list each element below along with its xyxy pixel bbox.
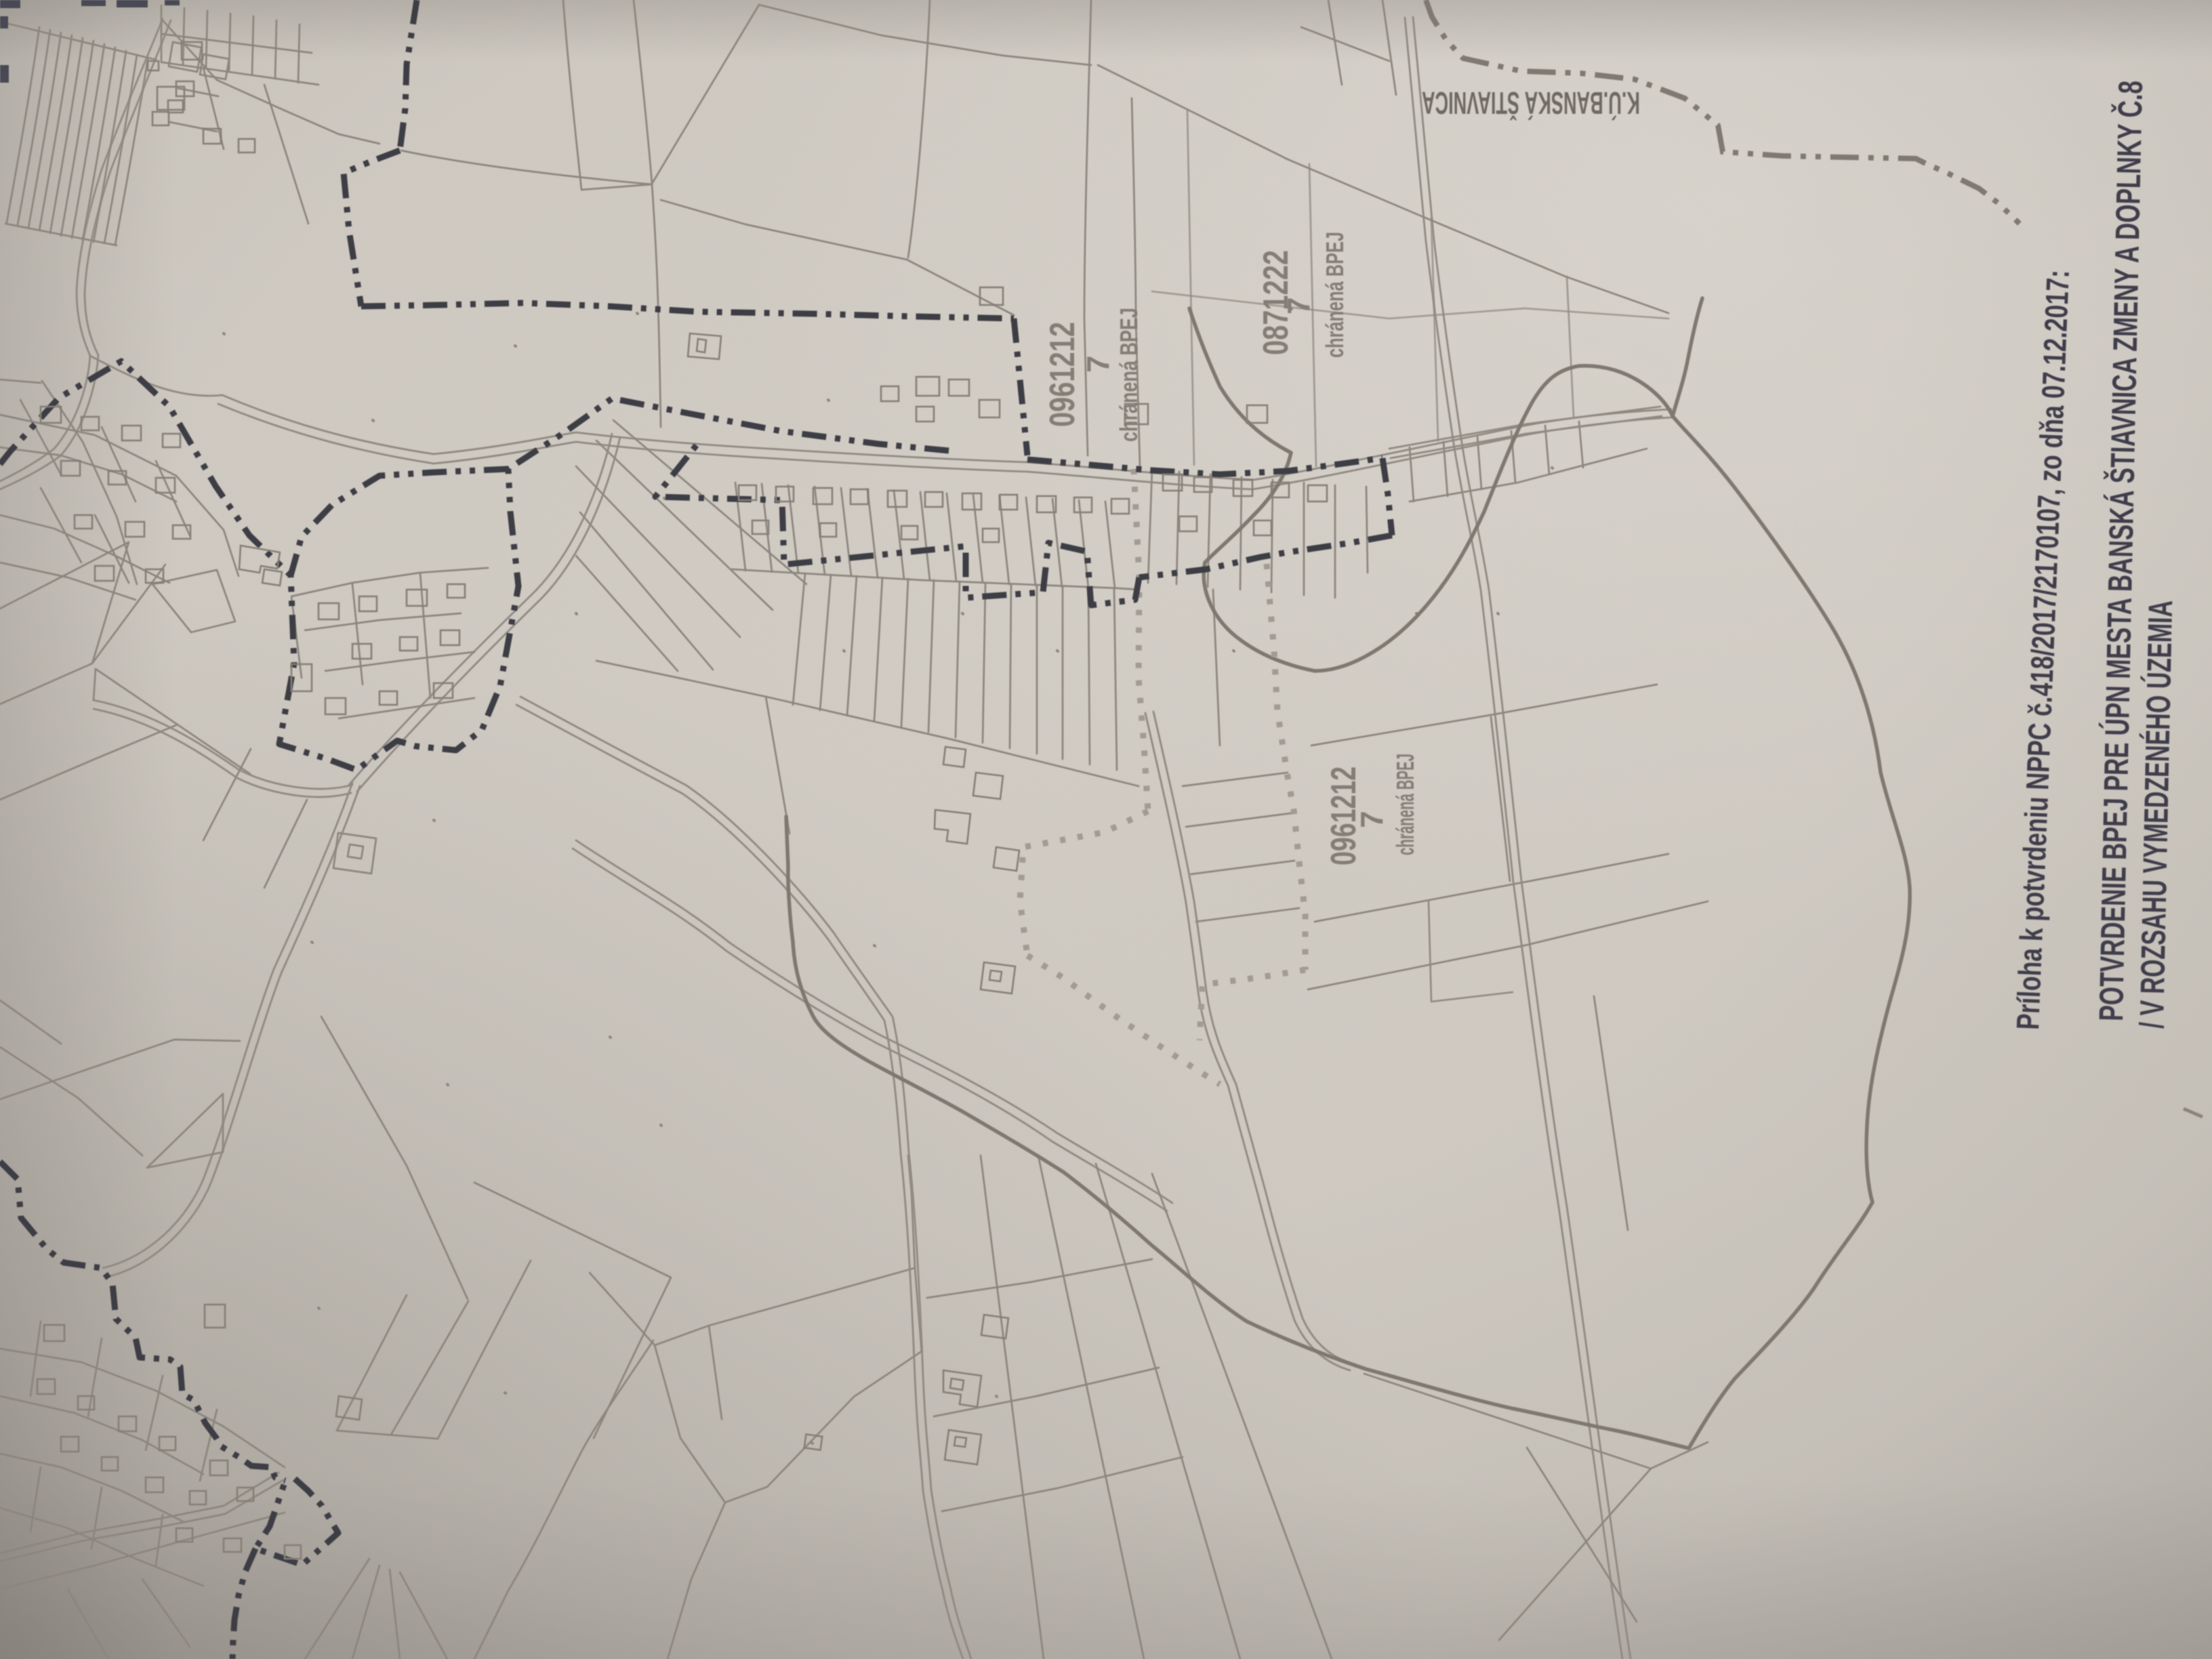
svg-text:chránená BPEJ: chránená BPEJ	[1391, 754, 1419, 855]
svg-text:7: 7	[1080, 355, 1115, 373]
svg-text:7: 7	[1281, 297, 1316, 314]
svg-text:K.Ú.BANSKÁ ŠTIAVNICA: K.Ú.BANSKÁ ŠTIAVNICA	[1422, 85, 1640, 121]
svg-text:chránená BPEJ: chránená BPEJ	[1321, 232, 1349, 358]
svg-text:7: 7	[1354, 811, 1389, 828]
svg-text:chránená BPEJ: chránená BPEJ	[1115, 308, 1143, 442]
svg-text:0961212: 0961212	[1043, 322, 1082, 427]
